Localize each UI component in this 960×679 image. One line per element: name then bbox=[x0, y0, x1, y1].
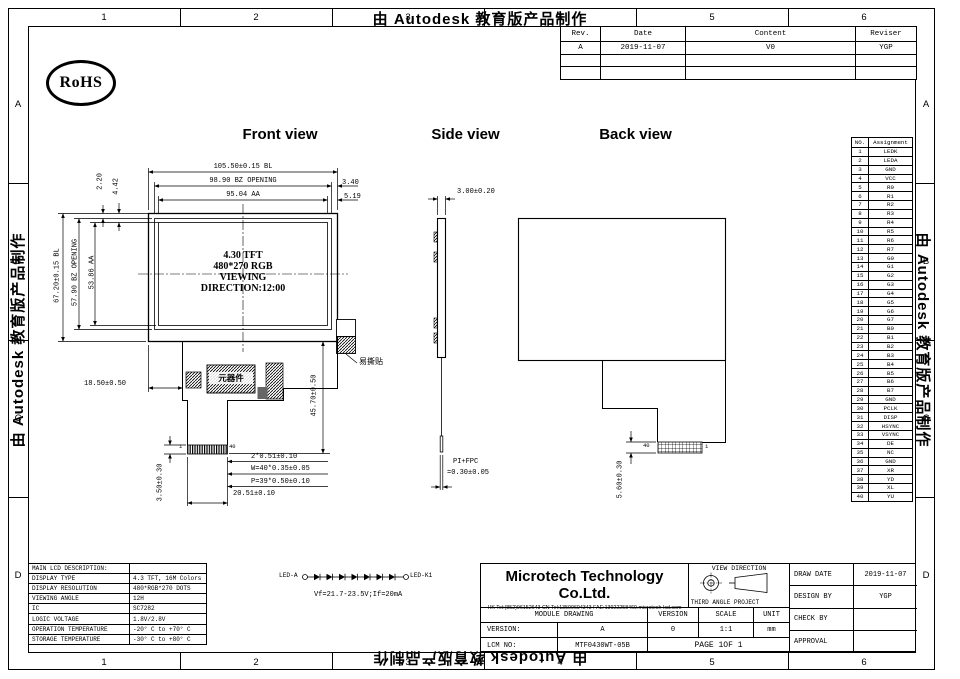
pin-number: 24 bbox=[852, 351, 869, 360]
revision-header-row: Rev. Date Content Reviser bbox=[561, 27, 917, 42]
dim-connector: 5.60±0.30 bbox=[618, 452, 625, 508]
pin-number: 21 bbox=[852, 324, 869, 333]
pin-assignment: R7 bbox=[869, 245, 913, 254]
diode-icon bbox=[323, 574, 336, 580]
back-view-title: Back view bbox=[583, 126, 688, 143]
pin-number: 35 bbox=[852, 448, 869, 457]
diode-icon bbox=[361, 574, 374, 580]
pin-assignment: B4 bbox=[869, 360, 913, 369]
dim-fpc-thickness-value: =0.30±0.05 bbox=[447, 470, 489, 477]
approval-label: APPROVAL bbox=[790, 631, 854, 653]
pin-row: 14G1 bbox=[852, 262, 913, 271]
revision-cell bbox=[561, 54, 601, 67]
pin-assignment: PCLK bbox=[869, 404, 913, 413]
lcd-label: VIEWING ANGLE bbox=[29, 594, 130, 604]
lcd-title-row: MAIN LCD DESCRIPTION: bbox=[29, 564, 207, 574]
check-by-value bbox=[854, 609, 917, 630]
row-label-left: A bbox=[10, 96, 26, 112]
check-by-label: CHECK BY bbox=[790, 609, 854, 630]
revision-col-reviser: Reviser bbox=[856, 27, 917, 42]
col-label-bottom: 6 bbox=[856, 654, 872, 670]
dim-bl-height: 67.20±0.15 BL bbox=[55, 231, 62, 321]
view-direction-cell: VIEW DIRECTION THIRD ANGLE PROJECT bbox=[689, 564, 789, 608]
pin-assignment: VSYNC bbox=[869, 431, 913, 440]
pin-row: 15G2 bbox=[852, 271, 913, 280]
pin-row: 38YD bbox=[852, 475, 913, 484]
pin-number: 20 bbox=[852, 316, 869, 325]
pin-row: 26B5 bbox=[852, 369, 913, 378]
diode-icon bbox=[386, 574, 399, 580]
pin-number: 12 bbox=[852, 245, 869, 254]
front-pin-1-label: 1 bbox=[179, 444, 182, 450]
pin-table: NO. Assignment 1LEDK2LEDA3GND4VCC5R06R17… bbox=[851, 137, 913, 502]
diode-icon bbox=[311, 574, 324, 580]
design-by-row: DESIGN BY YGP bbox=[790, 586, 917, 608]
scale-column-header: SCALE bbox=[699, 608, 754, 623]
version-column-header: VERSION bbox=[648, 608, 699, 623]
ruler-tick bbox=[8, 497, 28, 498]
design-by-value: YGP bbox=[854, 586, 917, 607]
pin-number: 30 bbox=[852, 404, 869, 413]
check-by-row: CHECK BY bbox=[790, 609, 917, 631]
revision-col-content: Content bbox=[686, 27, 856, 42]
ruler-tick bbox=[180, 652, 181, 670]
pin-number: 33 bbox=[852, 431, 869, 440]
pin-number: 16 bbox=[852, 280, 869, 289]
version-label: VERSION: bbox=[481, 623, 558, 638]
ruler-tick bbox=[788, 8, 789, 26]
lcd-label: DISPLAY TYPE bbox=[29, 574, 130, 584]
unit-value: mm bbox=[754, 623, 789, 638]
pin-assignment: DISP bbox=[869, 413, 913, 422]
lcd-label: DISPLAY RESOLUTION bbox=[29, 584, 130, 594]
lcd-row: VIEWING ANGLE12H bbox=[29, 594, 207, 604]
pin-number: 4 bbox=[852, 174, 869, 183]
lcd-row: DISPLAY RESOLUTION480*RGB*270 DOTS bbox=[29, 584, 207, 594]
pin-assignment: GND bbox=[869, 165, 913, 174]
title-block: Microtech Technology Co.Ltd. HK Tel:(852… bbox=[480, 563, 916, 652]
lcd-title-empty-cell bbox=[130, 564, 207, 574]
watermark-right: 由 Autodesk 教育版产品制作 bbox=[918, 190, 934, 490]
pin-row: 24B3 bbox=[852, 351, 913, 360]
lcd-description-table: MAIN LCD DESCRIPTION: DISPLAY TYPE4.3 TF… bbox=[28, 563, 207, 645]
pin-number: 40 bbox=[852, 492, 869, 501]
pin-row: 33VSYNC bbox=[852, 431, 913, 440]
lcd-row: LOGIC VOLTAGE1.8V/2.8V bbox=[29, 614, 207, 624]
led-diode-chain bbox=[311, 574, 399, 580]
pin-row: 35NC bbox=[852, 448, 913, 457]
front-fpc-contacts bbox=[188, 445, 228, 454]
ruler-tick bbox=[8, 183, 28, 184]
side-view-dimensions bbox=[428, 196, 455, 490]
pin-assignment: R1 bbox=[869, 192, 913, 201]
pin-row: 6R1 bbox=[852, 192, 913, 201]
pin-number: 10 bbox=[852, 227, 869, 236]
scale-value: 1:1 bbox=[699, 623, 754, 638]
pin-number: 14 bbox=[852, 262, 869, 271]
lcd-row: ICSC7282 bbox=[29, 604, 207, 614]
lcd-table-title: MAIN LCD DESCRIPTION: bbox=[29, 564, 130, 574]
dim-fpc-width: 20.51±0.10 bbox=[233, 491, 275, 498]
pin-row: 31DISP bbox=[852, 413, 913, 422]
revision-cell bbox=[601, 54, 686, 67]
front-view-title: Front view bbox=[225, 126, 335, 143]
view-direction-label: VIEW DIRECTION bbox=[689, 564, 789, 572]
ruler-tick bbox=[636, 8, 637, 26]
revision-row: A2019-11-07V0YGP bbox=[561, 42, 917, 55]
pin-row: 5R0 bbox=[852, 183, 913, 192]
pin-row: 27B6 bbox=[852, 377, 913, 386]
pin-assignment: YU bbox=[869, 492, 913, 501]
third-angle-projection-icon bbox=[691, 572, 787, 594]
front-view-outline bbox=[138, 204, 357, 454]
back-fpc-contacts bbox=[658, 442, 702, 453]
sticker-bottom bbox=[337, 337, 356, 354]
revision-row bbox=[561, 67, 917, 80]
dim-fpc-bottom: 3.50±0.30 bbox=[158, 455, 165, 511]
design-by-label: DESIGN BY bbox=[790, 586, 854, 607]
pin-assignment: G2 bbox=[869, 271, 913, 280]
draw-date-label: DRAW DATE bbox=[790, 564, 854, 585]
front-pin-40-label: 40 bbox=[229, 444, 236, 450]
pin-assignment: HSYNC bbox=[869, 422, 913, 431]
pin-row: 29GND bbox=[852, 395, 913, 404]
lcd-row: DISPLAY TYPE4.3 TFT, 16M Colors bbox=[29, 574, 207, 584]
pin-number: 8 bbox=[852, 209, 869, 218]
rohs-logo: RoHS bbox=[46, 60, 116, 106]
pin-row: 28B7 bbox=[852, 386, 913, 395]
pin-row: 32HSYNC bbox=[852, 422, 913, 431]
pin-number: 15 bbox=[852, 271, 869, 280]
component-box-dark bbox=[258, 387, 268, 399]
pin-assignment: VCC bbox=[869, 174, 913, 183]
lcd-label: LOGIC VOLTAGE bbox=[29, 614, 130, 624]
pin-assignment: LEDK bbox=[869, 148, 913, 157]
pin-assignment: G4 bbox=[869, 289, 913, 298]
pin-number: 26 bbox=[852, 369, 869, 378]
pin-assignment: G5 bbox=[869, 298, 913, 307]
pin-row: 16G3 bbox=[852, 280, 913, 289]
lcd-table-body: DISPLAY TYPE4.3 TFT, 16M ColorsDISPLAY R… bbox=[29, 574, 207, 645]
revision-col-rev: Rev. bbox=[561, 27, 601, 42]
revision-row bbox=[561, 54, 917, 67]
pin-number: 34 bbox=[852, 439, 869, 448]
led-circuit bbox=[303, 574, 409, 580]
dim-bl-width: 105.50±0.15 BL bbox=[148, 164, 338, 171]
version-number: 0 bbox=[648, 623, 699, 638]
component-label: 元器件 bbox=[209, 372, 253, 384]
revision-cell bbox=[686, 54, 856, 67]
pin-row: 2LEDA bbox=[852, 156, 913, 165]
watermark-left: 由 Autodesk 教育版产品制作 bbox=[7, 190, 23, 490]
pin-assignment: GND bbox=[869, 457, 913, 466]
draw-date-row: DRAW DATE 2019-11-07 bbox=[790, 564, 917, 586]
pin-assignment: XL bbox=[869, 484, 913, 493]
pin-assignment: GND bbox=[869, 395, 913, 404]
component-box-tall bbox=[266, 363, 283, 399]
pin-number: 32 bbox=[852, 422, 869, 431]
pin-assignment: DE bbox=[869, 439, 913, 448]
pin-number: 29 bbox=[852, 395, 869, 404]
pin-row: 17G4 bbox=[852, 289, 913, 298]
revision-cell bbox=[856, 54, 917, 67]
revision-cell bbox=[561, 67, 601, 80]
col-label-bottom: 1 bbox=[96, 654, 112, 670]
pin-number: 2 bbox=[852, 156, 869, 165]
led-spec: Vf=21.7-23.5V;If=20mA bbox=[314, 592, 402, 599]
revision-table: Rev. Date Content Reviser A2019-11-07V0Y… bbox=[560, 26, 917, 80]
dim-right-2: 5.19 bbox=[344, 194, 361, 201]
side-view-outline bbox=[434, 219, 446, 453]
dim-top-2: 4.42 bbox=[114, 172, 121, 202]
dim-thickness: 3.00±0.20 bbox=[457, 189, 495, 196]
pin-row: 3GND bbox=[852, 165, 913, 174]
pin-row: 22B1 bbox=[852, 333, 913, 342]
pin-row: 7R2 bbox=[852, 201, 913, 210]
pin-number: 39 bbox=[852, 484, 869, 493]
pin-row: 30PCLK bbox=[852, 404, 913, 413]
pin-assignment: G1 bbox=[869, 262, 913, 271]
pin-assignment: NC bbox=[869, 448, 913, 457]
dim-fpc-thickness-label: PI+FPC bbox=[453, 459, 478, 466]
pin-number: 17 bbox=[852, 289, 869, 298]
lcd-label: OPERATION TEMPERATURE bbox=[29, 624, 130, 634]
led-cathode-label: LED-K1 bbox=[410, 573, 432, 579]
col-label-top: 2 bbox=[248, 9, 264, 25]
lcd-value: -30° C to +80° C bbox=[130, 634, 207, 644]
row-label-right: D bbox=[918, 567, 934, 583]
pin-row: 11R6 bbox=[852, 236, 913, 245]
sheet: 由 Autodesk 教育版产品制作 由 Autodesk 教育版产品制作 由 … bbox=[0, 0, 960, 679]
pin-number: 36 bbox=[852, 457, 869, 466]
led-anode-label: LED-A bbox=[279, 573, 298, 579]
pin-number: 6 bbox=[852, 192, 869, 201]
pin-row: 37XR bbox=[852, 466, 913, 475]
ruler-tick bbox=[788, 652, 789, 670]
pin-number: 19 bbox=[852, 307, 869, 316]
back-view-dimensions bbox=[626, 431, 656, 464]
pin-assignment: B2 bbox=[869, 342, 913, 351]
pin-assignment: R5 bbox=[869, 227, 913, 236]
back-pin-40-label: 40 bbox=[643, 443, 650, 449]
pin-row: 1LEDK bbox=[852, 148, 913, 157]
pin-number: 28 bbox=[852, 386, 869, 395]
pin-assignment: R6 bbox=[869, 236, 913, 245]
pin-assignment: LEDA bbox=[869, 156, 913, 165]
pin-assignment: R4 bbox=[869, 218, 913, 227]
col-label-bottom: 2 bbox=[248, 654, 264, 670]
pin-assignment: B1 bbox=[869, 333, 913, 342]
col-label-bottom: 5 bbox=[704, 654, 720, 670]
pin-assignment: B3 bbox=[869, 351, 913, 360]
page-label: PAGE 1OF 1 bbox=[648, 638, 789, 653]
panel-line-viewing: VIEWING bbox=[168, 272, 318, 283]
ruler-tick bbox=[636, 652, 637, 670]
watermark-bottom: 由 Autodesk 教育版产品制作 bbox=[330, 652, 630, 669]
pin-row: 4VCC bbox=[852, 174, 913, 183]
dim-bz-height: 57.90 BZ OPENING bbox=[73, 233, 80, 313]
pin-row: 13G0 bbox=[852, 254, 913, 263]
pin-assignment: G0 bbox=[869, 254, 913, 263]
lcd-value: 1.8V/2.8V bbox=[130, 614, 207, 624]
pin-assignment: B7 bbox=[869, 386, 913, 395]
pin-number: 31 bbox=[852, 413, 869, 422]
pin-assignment: G6 bbox=[869, 307, 913, 316]
panel-line-resolution: 480*270 RGB bbox=[168, 261, 318, 272]
pin-number: 13 bbox=[852, 254, 869, 263]
projection-label: THIRD ANGLE PROJECT bbox=[661, 599, 789, 606]
pin-assignment: B0 bbox=[869, 324, 913, 333]
draw-date-value: 2019-11-07 bbox=[854, 564, 917, 585]
revision-cell: 2019-11-07 bbox=[601, 42, 686, 55]
pin-row: 9R4 bbox=[852, 218, 913, 227]
revision-cell: V0 bbox=[686, 42, 856, 55]
lcd-row: STORAGE TEMPERATURE-30° C to +80° C bbox=[29, 634, 207, 644]
pin-assignment: R0 bbox=[869, 183, 913, 192]
version-row: VERSION: A 0 1:1 mm bbox=[481, 623, 789, 638]
pin-assignment: G3 bbox=[869, 280, 913, 289]
pin-row: 20G7 bbox=[852, 316, 913, 325]
approval-value bbox=[854, 631, 917, 653]
lcd-value: -20° C to +70° C bbox=[130, 624, 207, 634]
pin-row: 21B0 bbox=[852, 324, 913, 333]
diode-icon bbox=[336, 574, 349, 580]
diode-icon bbox=[373, 574, 386, 580]
pin-row: 40YU bbox=[852, 492, 913, 501]
pin-number: 27 bbox=[852, 377, 869, 386]
col-label-top: 6 bbox=[856, 9, 872, 25]
pin-row: 23B2 bbox=[852, 342, 913, 351]
lcd-value: 480*RGB*270 DOTS bbox=[130, 584, 207, 594]
pin-row: 25B4 bbox=[852, 360, 913, 369]
unit-column-header: UNIT bbox=[754, 608, 789, 623]
signoff-table: DRAW DATE 2019-11-07 DESIGN BY YGP CHECK… bbox=[789, 564, 917, 653]
pin-col-no: NO. bbox=[852, 138, 869, 148]
dim-aa-width: 95.04 AA bbox=[158, 192, 328, 199]
company-cell: Microtech Technology Co.Ltd. HK Tel:(852… bbox=[481, 564, 689, 608]
row-label-left: D bbox=[10, 567, 26, 583]
pin-row: 18G5 bbox=[852, 298, 913, 307]
revision-col-date: Date bbox=[601, 27, 686, 42]
pin-number: 38 bbox=[852, 475, 869, 484]
module-drawing-table: MODULE DRAWING VERSION SCALE UNIT VERSIO… bbox=[481, 608, 789, 653]
watermark-top: 由 Autodesk 教育版产品制作 bbox=[330, 8, 630, 25]
panel-line-direction: DIRECTION:12:00 bbox=[168, 283, 318, 294]
approval-row: APPROVAL bbox=[790, 631, 917, 653]
pin-number: 23 bbox=[852, 342, 869, 351]
pin-header-row: NO. Assignment bbox=[852, 138, 913, 148]
dim-right-1: 3.40 bbox=[342, 180, 359, 187]
pin-row: 39XL bbox=[852, 484, 913, 493]
diode-icon bbox=[348, 574, 361, 580]
pin-number: 18 bbox=[852, 298, 869, 307]
lcd-value: 4.3 TFT, 16M Colors bbox=[130, 574, 207, 584]
lcd-label: STORAGE TEMPERATURE bbox=[29, 634, 130, 644]
pin-number: 1 bbox=[852, 148, 869, 157]
dim-fpc-3: P=39*0.50±0.10 bbox=[251, 479, 310, 486]
lcd-value: SC7282 bbox=[130, 604, 207, 614]
dim-aa-height: 53.86 AA bbox=[90, 243, 97, 303]
version-value: A bbox=[558, 623, 648, 638]
dim-top-1: 2.20 bbox=[98, 167, 105, 197]
ruler-tick bbox=[915, 183, 935, 184]
pin-assignment: YD bbox=[869, 475, 913, 484]
panel-line-size: 4.30 TFT bbox=[168, 250, 318, 261]
dim-fpc-1: 2*0.51±0.10 bbox=[251, 454, 297, 461]
pin-assignment: R3 bbox=[869, 209, 913, 218]
pin-row: 36GND bbox=[852, 457, 913, 466]
pin-table-body: 1LEDK2LEDA3GND4VCC5R06R17R28R39R410R511R… bbox=[852, 148, 913, 502]
module-drawing-label: MODULE DRAWING bbox=[481, 608, 648, 623]
pin-row: 8R3 bbox=[852, 209, 913, 218]
company-name: Microtech Technology Co.Ltd. bbox=[481, 564, 688, 602]
module-drawing-header-row: MODULE DRAWING VERSION SCALE UNIT bbox=[481, 608, 789, 623]
pin-assignment: XR bbox=[869, 466, 913, 475]
pin-row: 10R5 bbox=[852, 227, 913, 236]
pin-assignment: R2 bbox=[869, 201, 913, 210]
sticker-top bbox=[337, 320, 356, 337]
sticker-label: 易撕贴 bbox=[359, 356, 383, 367]
ruler-tick bbox=[915, 497, 935, 498]
dim-pcb-height: 45.70±0.50 bbox=[312, 363, 319, 429]
col-label-top: 1 bbox=[96, 9, 112, 25]
pin-assignment: B6 bbox=[869, 377, 913, 386]
pin-row: 19G6 bbox=[852, 307, 913, 316]
revision-cell bbox=[686, 67, 856, 80]
pin-number: 25 bbox=[852, 360, 869, 369]
back-view-outline bbox=[519, 219, 726, 454]
pin-col-assignment: Assignment bbox=[869, 138, 913, 148]
revision-body: A2019-11-07V0YGP bbox=[561, 42, 917, 80]
ruler-tick bbox=[180, 8, 181, 26]
pin-row: 34DE bbox=[852, 439, 913, 448]
revision-cell bbox=[856, 67, 917, 80]
pin-number: 5 bbox=[852, 183, 869, 192]
pin-number: 11 bbox=[852, 236, 869, 245]
pin-number: 22 bbox=[852, 333, 869, 342]
col-label-top: 5 bbox=[704, 9, 720, 25]
pin-number: 3 bbox=[852, 165, 869, 174]
revision-cell bbox=[601, 67, 686, 80]
back-pin-1-label: 1 bbox=[705, 444, 708, 450]
dim-fpc-2: W=40*0.35±0.05 bbox=[251, 466, 310, 473]
revision-cell: YGP bbox=[856, 42, 917, 55]
component-box-small bbox=[186, 372, 201, 388]
row-label-right: A bbox=[918, 96, 934, 112]
pin-number: 7 bbox=[852, 201, 869, 210]
pin-number: 37 bbox=[852, 466, 869, 475]
side-view-title: Side view bbox=[418, 126, 513, 143]
pin-assignment: B5 bbox=[869, 369, 913, 378]
revision-cell: A bbox=[561, 42, 601, 55]
panel-spec-text: 4.30 TFT 480*270 RGB VIEWING DIRECTION:1… bbox=[168, 250, 318, 294]
dim-pcb-left: 18.50±0.50 bbox=[84, 381, 126, 388]
lcd-value: 12H bbox=[130, 594, 207, 604]
lcd-row: OPERATION TEMPERATURE-20° C to +70° C bbox=[29, 624, 207, 634]
pin-number: 9 bbox=[852, 218, 869, 227]
dim-bz-width: 98.90 BZ OPENING bbox=[154, 178, 332, 185]
lcd-label: IC bbox=[29, 604, 130, 614]
pin-row: 12R7 bbox=[852, 245, 913, 254]
pin-assignment: G7 bbox=[869, 316, 913, 325]
